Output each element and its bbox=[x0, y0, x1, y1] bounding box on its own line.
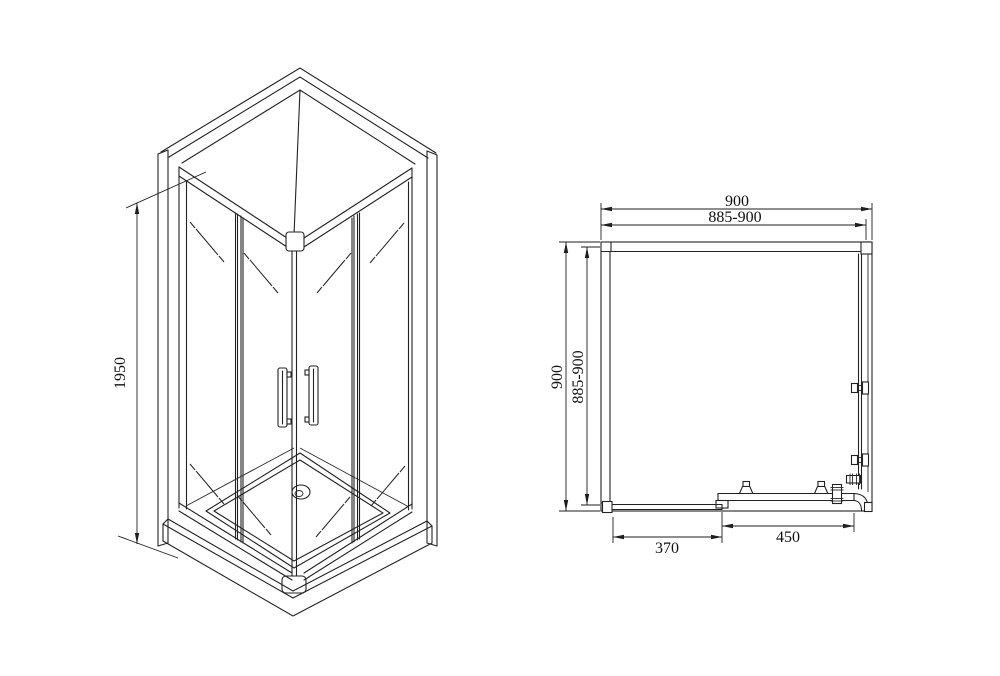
glass-mark bbox=[316, 497, 350, 537]
plan-door-small-label: 370 bbox=[655, 540, 679, 557]
right-door-roller bbox=[852, 382, 869, 394]
plan-view: 900 885-900 900 885-900 bbox=[549, 193, 872, 557]
bottom-door-roller bbox=[740, 482, 753, 494]
plan-width-dimension-inner: 885-900 bbox=[601, 209, 866, 240]
top-frame bbox=[161, 68, 436, 235]
corner-post-cap bbox=[286, 232, 304, 251]
isometric-view: 1950 bbox=[112, 68, 437, 616]
glass-mark bbox=[244, 253, 278, 293]
plan-back-panel bbox=[601, 242, 872, 252]
iso-height-dimension-label: 1950 bbox=[112, 357, 129, 389]
height-dimension: 1950 bbox=[112, 172, 206, 558]
plan-door-large-label: 450 bbox=[776, 529, 800, 546]
bottom-door-guide-bolt bbox=[831, 485, 844, 504]
left-door-handle bbox=[278, 368, 291, 427]
right-door-roller bbox=[852, 454, 869, 466]
right-door-top-bracket bbox=[861, 242, 872, 254]
bottom-door-roller bbox=[815, 482, 828, 494]
plan-depth-outer-label: 900 bbox=[549, 365, 566, 389]
plan-door-dimension-small: 370 bbox=[613, 512, 722, 557]
tray-drain bbox=[292, 485, 310, 499]
right-door-guide-bolt bbox=[847, 474, 861, 486]
plan-outline bbox=[601, 242, 872, 511]
glass-mark bbox=[190, 464, 224, 504]
plan-width-outer-label: 900 bbox=[725, 193, 749, 210]
plan-depth-dimension-inner: 885-900 bbox=[570, 247, 600, 505]
glass-mark bbox=[317, 253, 351, 293]
glass-reflection-marks bbox=[190, 222, 405, 537]
shower-enclosure-drawing: 1950 bbox=[0, 0, 1000, 676]
left-wall-profile bbox=[158, 150, 179, 546]
plan-door-dimension-large: 450 bbox=[722, 513, 854, 546]
right-door-handle bbox=[305, 366, 318, 425]
plan-bottom-door bbox=[603, 482, 856, 513]
door-handles bbox=[278, 366, 318, 427]
plan-side-panel bbox=[601, 252, 610, 504]
technical-drawing-page: 1950 bbox=[0, 0, 1000, 676]
glass-mark bbox=[371, 466, 405, 506]
bottom-door-end-bracket bbox=[603, 502, 613, 513]
plan-depth-inner-label: 885-900 bbox=[570, 350, 587, 403]
plan-width-inner-label: 885-900 bbox=[708, 209, 761, 226]
corner-foot bbox=[865, 503, 873, 512]
glass-mark bbox=[370, 223, 404, 263]
right-wall-profile bbox=[412, 151, 437, 546]
corner-elbow bbox=[854, 494, 872, 512]
plan-right-door bbox=[847, 242, 873, 512]
glass-mark bbox=[190, 222, 224, 262]
bottom-rails bbox=[179, 503, 412, 580]
